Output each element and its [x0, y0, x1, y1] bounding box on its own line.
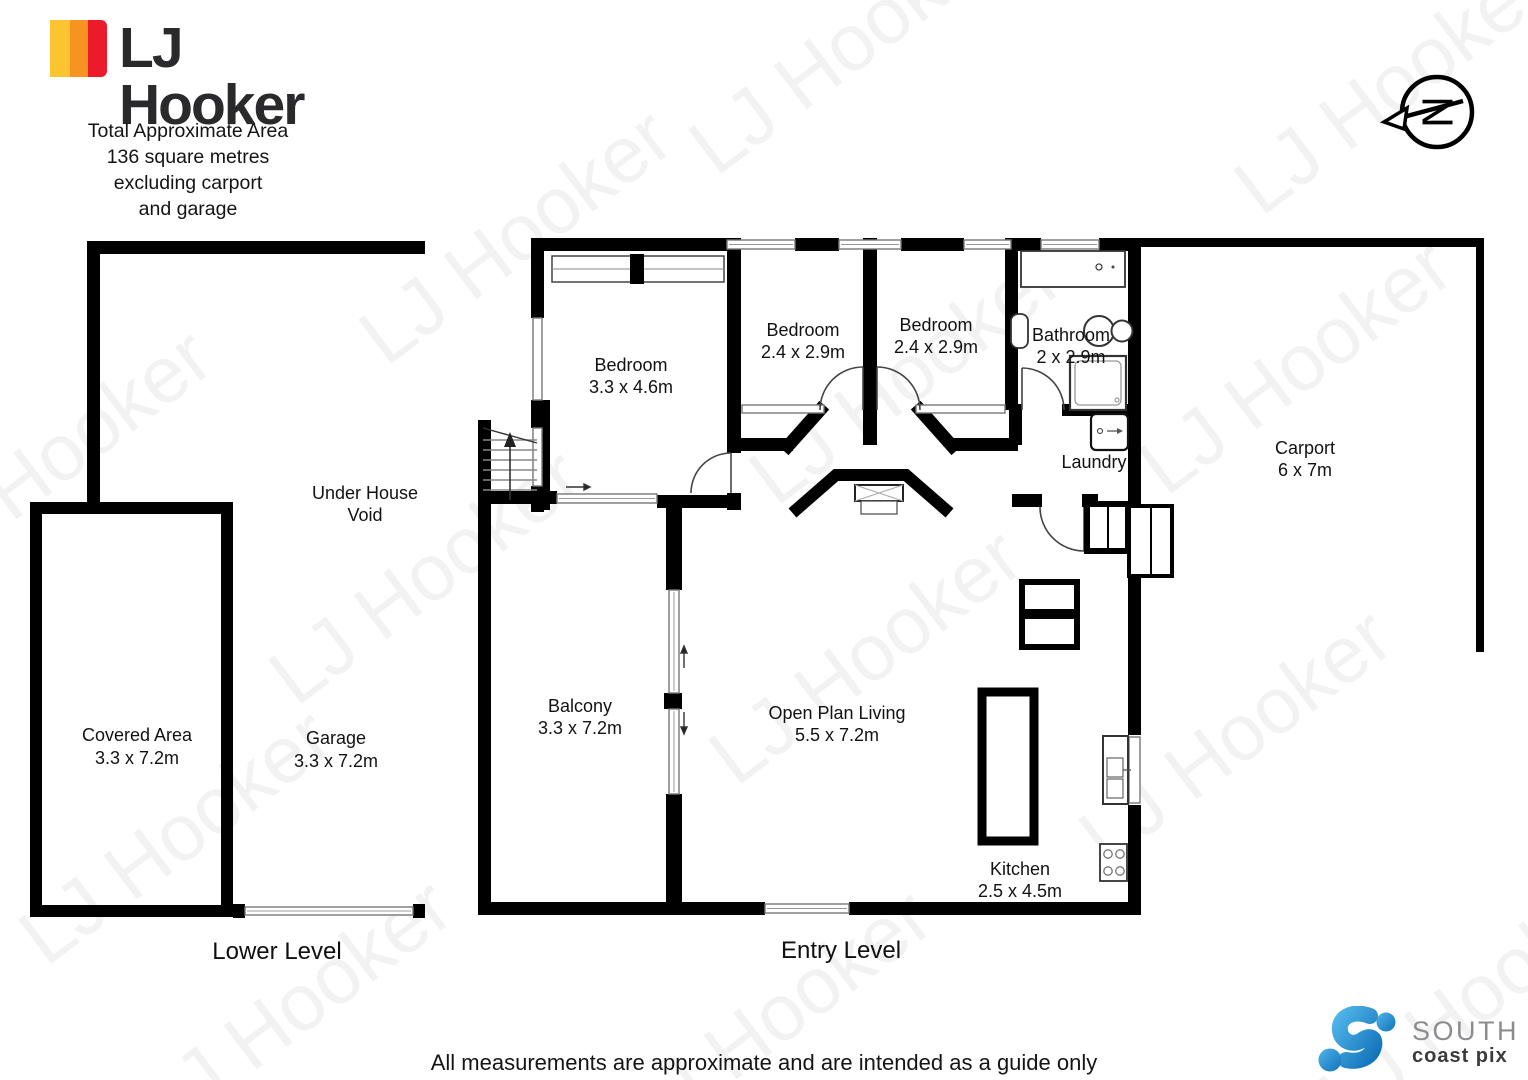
area-note-line1: Total Approximate Area: [38, 118, 338, 144]
logo-stripes-icon: [50, 20, 107, 77]
island-bench: [982, 692, 1034, 841]
under-house-void-label: Under House: [312, 483, 418, 503]
garage-label: Garage: [306, 728, 366, 748]
entry-level-label: Entry Level: [781, 937, 901, 964]
floorplan-page: LJ Hooker LJ Hooker LJ Hooker LJ Hooker …: [0, 0, 1528, 1080]
stove: [1100, 844, 1127, 881]
fixtures: [552, 251, 1172, 881]
kitchen-dims: 2.5 x 4.5m: [978, 881, 1062, 901]
pantry: [1022, 616, 1077, 647]
balcony-dims: 3.3 x 7.2m: [538, 718, 622, 738]
fireplace: [855, 485, 903, 514]
doors: [691, 367, 1084, 551]
bedroom-3-dims: 2.4 x 2.9m: [894, 337, 978, 357]
kitchen-fixtures: [982, 504, 1172, 881]
bedroom-2-dims: 2.4 x 2.9m: [761, 342, 845, 362]
kitchen-label: Kitchen: [990, 859, 1050, 879]
living-dims: 5.5 x 7.2m: [795, 725, 879, 745]
basin: [1112, 321, 1133, 342]
room-labels: Bedroom 3.3 x 4.6m Bedroom 2.4 x 2.9m Be…: [82, 315, 1335, 901]
south-coast-pix-logo: SOUTH coast pix: [1318, 1006, 1528, 1078]
washing-machine: [1091, 414, 1128, 450]
stairs: [483, 428, 537, 500]
toilet: [1011, 314, 1028, 348]
garage-dims: 3.3 x 7.2m: [294, 751, 378, 771]
bathroom-label: Bathroom: [1032, 325, 1110, 345]
total-area-note: Total Approximate Area 136 square metres…: [38, 118, 338, 222]
balcony-label: Balcony: [548, 696, 612, 716]
area-note-line3: excluding carport: [38, 170, 338, 196]
bedroom-main-dims: 3.3 x 4.6m: [589, 377, 673, 397]
area-note-line2: 136 square metres: [38, 144, 338, 170]
area-note-line4: and garage: [38, 196, 338, 222]
lower-level-walls: [30, 241, 425, 918]
covered-area-label: Covered Area: [82, 725, 193, 745]
laundry-label: Laundry: [1061, 452, 1126, 472]
logo-brand-text: LJ Hooker: [119, 20, 303, 134]
compass-letter: N: [1413, 96, 1462, 128]
compass-north-icon: N: [1384, 77, 1472, 147]
pantry: [1022, 582, 1077, 612]
covered-area-dims: 3.3 x 7.2m: [95, 748, 179, 768]
bedroom-main-label: Bedroom: [594, 355, 667, 375]
bedroom-2-label: Bedroom: [766, 320, 839, 340]
lj-hooker-logo: LJ Hooker: [50, 20, 303, 134]
lower-level-label: Lower Level: [212, 938, 341, 965]
bedroom-3-label: Bedroom: [899, 315, 972, 335]
south-coast-pix-icon: [1318, 1006, 1410, 1078]
carport-label: Carport: [1275, 438, 1335, 458]
disclaimer-text: All measurements are approximate and are…: [0, 1050, 1528, 1076]
bathroom-dims: 2 x 2.9m: [1036, 347, 1105, 367]
under-house-void-label2: Void: [347, 505, 382, 525]
credit-primary: SOUTH: [1412, 1018, 1519, 1045]
carport-dims: 6 x 7m: [1278, 460, 1332, 480]
credit-secondary: coast pix: [1412, 1045, 1519, 1067]
living-label: Open Plan Living: [768, 703, 905, 723]
